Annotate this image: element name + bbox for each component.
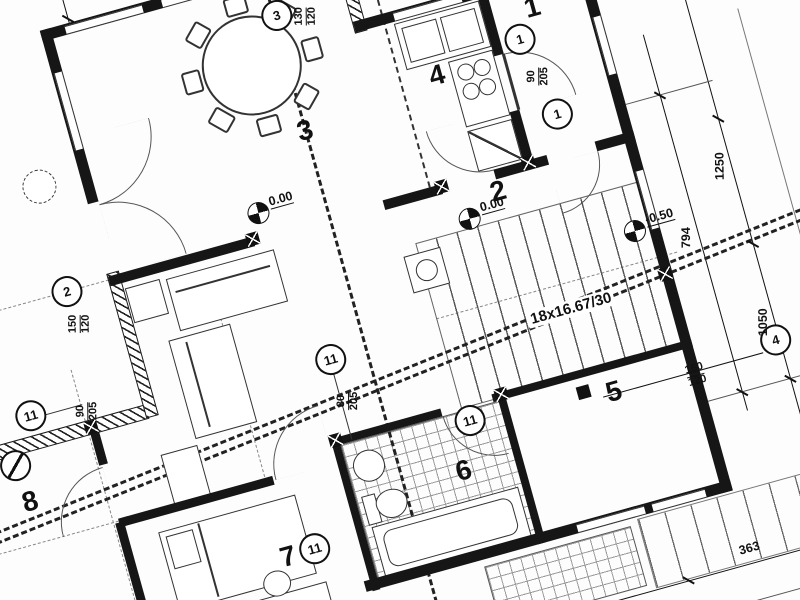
door-marker-11a: 11	[312, 340, 350, 378]
door-marker-11b: 11	[12, 397, 50, 435]
room-label-3: 3	[293, 113, 317, 148]
dim-ext-1	[626, 80, 713, 105]
level-value-2: 0.00	[478, 194, 505, 215]
window-size-4: 160120	[684, 361, 708, 389]
floor-plan: 18x16.67/30	[0, 0, 800, 600]
blueprint-page: 18x16.67/30	[0, 0, 800, 600]
column-8	[576, 384, 592, 400]
door-size-11b: 90205	[75, 402, 99, 421]
level-value-1: 0.00	[267, 189, 294, 210]
dim-line-topleft	[35, 0, 70, 23]
sofa-short	[168, 324, 257, 439]
room7-door-arc	[259, 405, 334, 480]
dining-chair-5	[180, 69, 204, 96]
slashed-circle-marker	[0, 447, 35, 485]
door-size-11a: 80205	[336, 392, 360, 411]
dim-1050: 1050	[756, 308, 770, 336]
window-size-2: 150120	[68, 315, 92, 334]
window-size-3: 130120	[294, 7, 318, 26]
room-label-8: 8	[18, 484, 42, 519]
room8-door-arc	[48, 467, 118, 537]
dim-794: 794	[679, 227, 693, 248]
dining-chair-1	[300, 36, 324, 63]
wall-mid-b	[383, 184, 443, 210]
dim-1250: 1250	[712, 152, 726, 180]
dining-chair-3	[255, 113, 282, 137]
dim-ext-2	[708, 363, 800, 401]
door-size-1: 90205	[526, 67, 550, 86]
room-label-4: 4	[425, 58, 449, 93]
entry-plant	[19, 166, 61, 208]
column-2	[434, 179, 450, 195]
coffee-table	[125, 279, 169, 323]
window-marker-2: 2	[48, 272, 86, 310]
axis-h-room7	[0, 521, 119, 567]
level-symbol-1	[245, 200, 272, 227]
room-label-1: 1	[520, 0, 544, 25]
column-1	[245, 231, 261, 247]
